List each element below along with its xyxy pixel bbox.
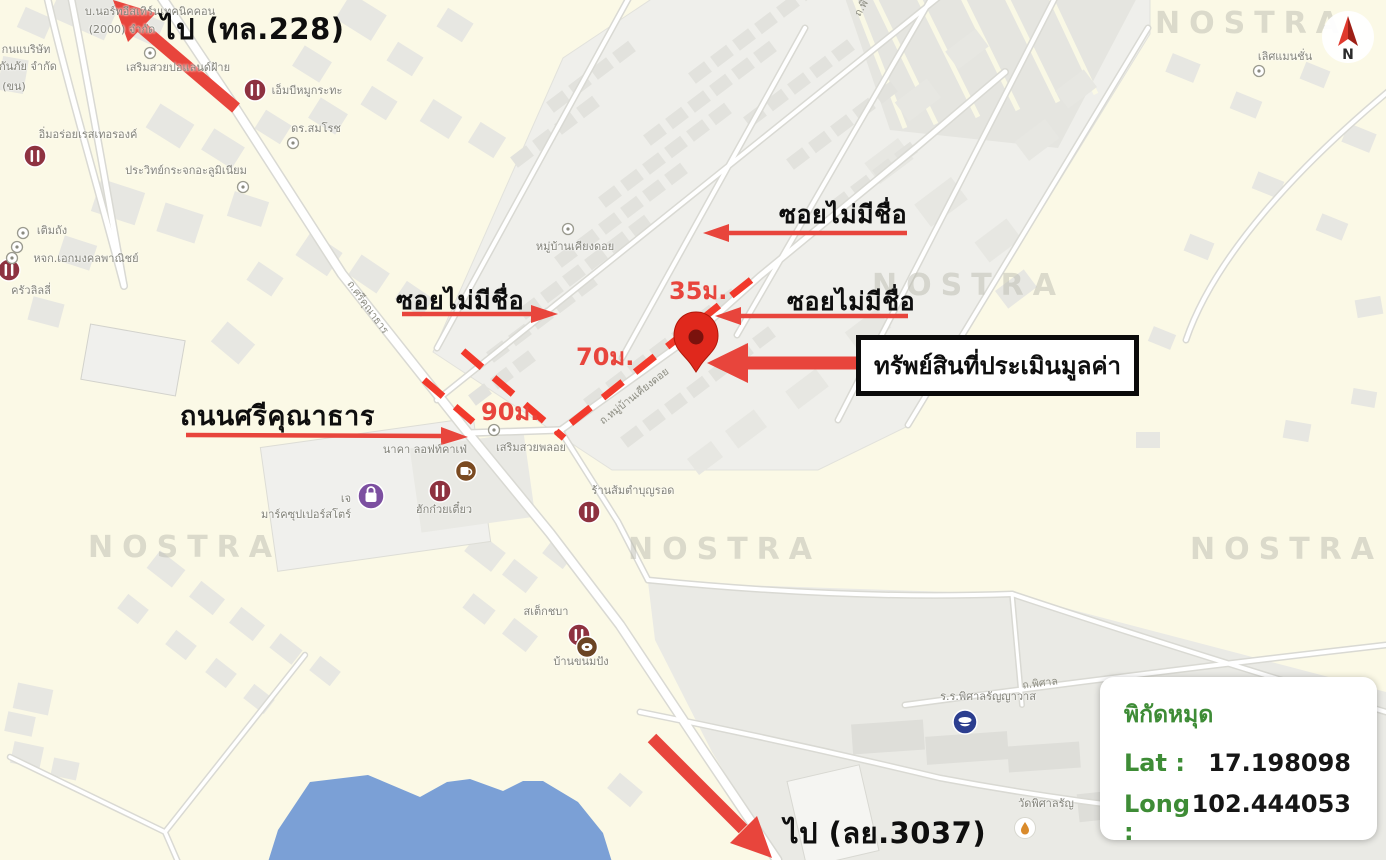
long-row: Long : 102.444053 [1124,790,1351,846]
coordinates-panel: พิกัดหมุด Lat : 17.198098 Long : 102.444… [1100,677,1377,840]
map-poi-label: เสริมสวยพลอย [496,438,566,456]
map-poi-label: สเต็กชบา [524,602,569,620]
direction-label-hwy228: ไป (ทล.228) [161,6,345,52]
compass-rose: N [1320,9,1376,65]
compass-icon: N [1320,9,1376,65]
map-poi-label: ประวิทย์กระจกอะลูมิเนียม [125,161,247,179]
map-poi-label: บ้านขนมปัง [553,652,608,670]
soi-label-mid: ซอยไม่มีชื่อ [787,282,915,322]
map-poi-label: (2000) จำกัด [89,20,156,38]
map-poi-label: นาคา ลอฟท์คาเฟ่ [383,440,467,458]
lat-value: 17.198098 [1208,749,1351,777]
property-callout-box: ทรัพย์สินที่ประเมินมูลค่า [856,335,1139,396]
map-poi-label: อิ่มอร่อยเรสเทอรองค์ [39,125,138,143]
map-poi-label: วัดพิศาลรัญ [1018,794,1074,812]
map-poi-label: ครัวลิลลี่ [11,281,51,299]
map-road-label: ถ.ศรีคุณาธาร [343,277,394,338]
map-page: { "annotations": { "direction_top_label"… [0,0,1386,860]
map-poi-label: กันภัย จำกัด [0,57,57,75]
map-poi-label: เสริมสวยปอแลนด์ฝ้าย [126,58,230,76]
map-poi-label: กนแบริษัท [2,40,51,58]
map-watermark: NOSTRA [88,530,281,565]
coordinates-title: พิกัดหมุด [1124,697,1351,733]
map-poi-label: หจก.เอกมงคลพาณิชย์ [33,249,138,267]
soi-label-left: ซอยไม่มีชื่อ [396,281,524,321]
compass-north-letter: N [1342,47,1354,63]
distance-label-90m: 90ม. [481,392,539,431]
main-road-annotation-label: ถนนศรีคุณาธาร [180,394,375,437]
distance-label-70m: 70ม. [576,337,634,376]
distance-label-35m: 35ม. [669,271,727,310]
map-poi-label: เอ็มบีหมูกระทะ [272,81,343,99]
map-poi-label: ฮักก๋วยเตี๋ยว [416,500,472,518]
map-poi-label: หมู่บ้านเคียงดอย [536,237,614,255]
map-poi-label: (ขน) [2,77,26,95]
map-poi-label: เติมถัง [37,221,67,239]
map-poi-label: มาร์คซุปเปอร์สโตร์ [261,505,351,523]
direction-label-ly3037: ไป (ลย.3037) [784,810,986,856]
soi-label-top: ซอยไม่มีชื่อ [779,195,907,235]
map-watermark: NOSTRA [1190,532,1383,567]
lat-row: Lat : 17.198098 [1124,749,1351,777]
map-poi-label: ร้านส้มตำบุญรอด [592,481,675,499]
map-poi-label: ร.ร.พิศาลรัญญาวาส [940,687,1036,705]
map-poi-label: ดร.สมโรช [291,119,341,137]
lat-label: Lat : [1124,749,1185,777]
map-poi-label: เจ [341,489,351,507]
map-watermark: NOSTRA [628,532,821,567]
long-value: 102.444053 [1192,790,1351,818]
map-road-label: ถ.พิศาล [1021,672,1058,693]
map-road-label: ถ.พิ [849,0,872,19]
map-poi-label: เลิศแมนชั่น [1258,47,1312,65]
long-label: Long : [1124,790,1192,846]
